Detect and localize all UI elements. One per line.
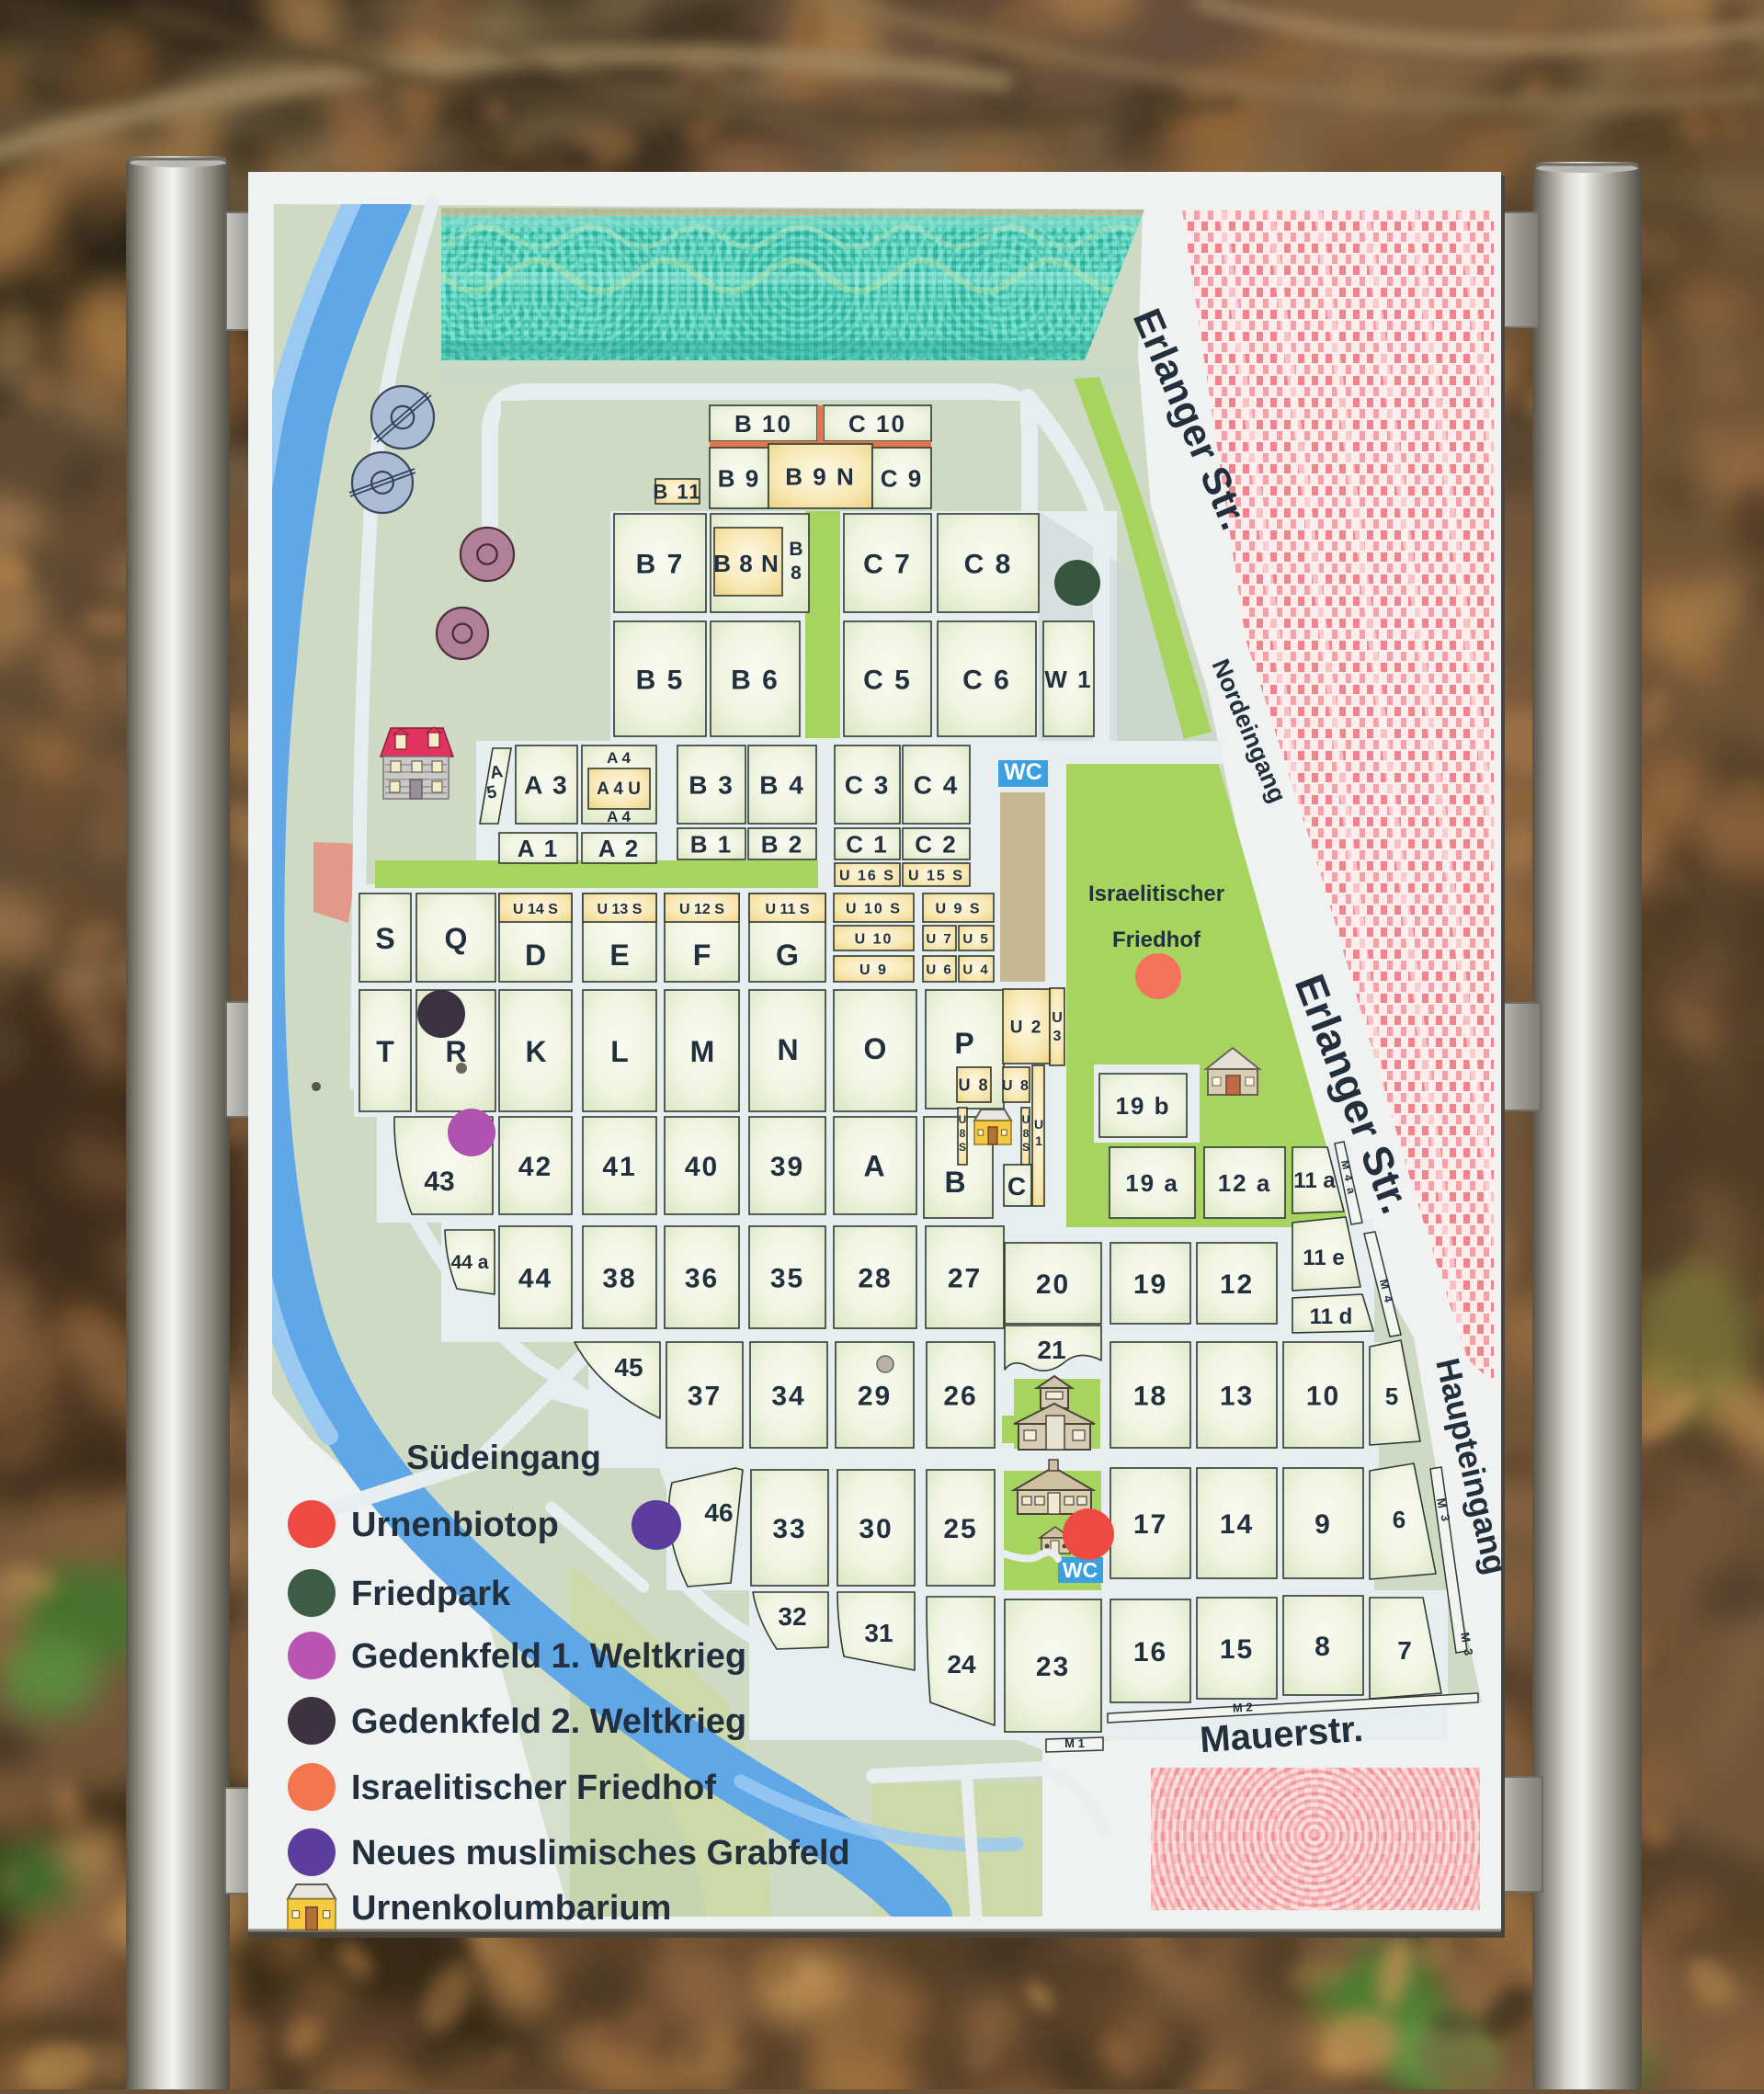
svg-text:28: 28 — [858, 1263, 892, 1293]
svg-text:12 a: 12 a — [1218, 1169, 1272, 1197]
svg-text:S: S — [1022, 1141, 1030, 1154]
svg-text:L: L — [610, 1035, 629, 1068]
svg-text:U: U — [1034, 1117, 1043, 1132]
svg-text:U: U — [1052, 1010, 1063, 1026]
svg-text:C 2: C 2 — [915, 830, 957, 858]
svg-text:Gedenkfeld 2. Weltkrieg: Gedenkfeld 2. Weltkrieg — [351, 1702, 746, 1741]
svg-text:B 9: B 9 — [718, 464, 760, 492]
svg-text:WC: WC — [1063, 1558, 1098, 1582]
svg-text:B 9 N: B 9 N — [785, 462, 855, 490]
svg-text:C 8: C 8 — [964, 549, 1013, 579]
svg-text:19 a: 19 a — [1125, 1169, 1179, 1197]
svg-text:P: P — [954, 1027, 973, 1060]
svg-text:9: 9 — [1314, 1509, 1332, 1540]
svg-text:C 5: C 5 — [863, 665, 912, 695]
svg-text:18: 18 — [1133, 1381, 1167, 1411]
svg-text:A 4: A 4 — [607, 749, 631, 767]
svg-text:36: 36 — [685, 1263, 719, 1293]
svg-text:U 14 S: U 14 S — [513, 902, 558, 917]
svg-text:C: C — [1007, 1172, 1026, 1201]
svg-text:8: 8 — [1314, 1632, 1332, 1662]
svg-text:45: 45 — [614, 1353, 643, 1382]
svg-text:13: 13 — [1220, 1381, 1254, 1411]
svg-text:A 4 U: A 4 U — [597, 780, 641, 799]
svg-text:M 2: M 2 — [1233, 1700, 1253, 1714]
svg-text:U 2: U 2 — [1010, 1018, 1043, 1037]
svg-text:26: 26 — [943, 1381, 977, 1411]
svg-text:W 1: W 1 — [1044, 666, 1092, 693]
svg-text:C 3: C 3 — [845, 771, 891, 800]
svg-text:41: 41 — [602, 1152, 636, 1182]
svg-text:31: 31 — [864, 1619, 893, 1647]
svg-text:S: S — [375, 922, 394, 955]
svg-text:39: 39 — [770, 1152, 804, 1182]
svg-text:8: 8 — [1023, 1127, 1030, 1140]
svg-text:U 6: U 6 — [926, 962, 952, 977]
svg-text:U 10: U 10 — [855, 931, 893, 947]
svg-text:B 10: B 10 — [734, 410, 792, 438]
svg-text:Gedenkfeld 1. Weltkrieg: Gedenkfeld 1. Weltkrieg — [351, 1637, 746, 1676]
svg-text:12: 12 — [1220, 1269, 1254, 1300]
svg-text:43: 43 — [424, 1166, 454, 1197]
svg-text:35: 35 — [770, 1263, 804, 1293]
svg-text:3: 3 — [1053, 1029, 1062, 1044]
svg-text:A 2: A 2 — [598, 835, 641, 862]
svg-text:16: 16 — [1133, 1637, 1167, 1667]
svg-text:B 1: B 1 — [690, 830, 733, 858]
svg-text:U 13 S: U 13 S — [597, 902, 643, 917]
svg-text:Friedpark: Friedpark — [351, 1575, 511, 1613]
svg-text:Friedhof: Friedhof — [1112, 928, 1201, 952]
svg-text:U 9 S: U 9 S — [935, 901, 981, 916]
svg-text:11 e: 11 e — [1303, 1246, 1344, 1270]
svg-text:B 8 N: B 8 N — [713, 550, 779, 577]
svg-text:A 1: A 1 — [518, 835, 560, 862]
svg-text:Israelitischer: Israelitischer — [1088, 882, 1224, 906]
svg-text:K: K — [525, 1035, 546, 1068]
svg-text:17: 17 — [1133, 1509, 1167, 1540]
svg-text:46: 46 — [704, 1498, 733, 1527]
svg-text:U 9: U 9 — [859, 962, 888, 978]
svg-text:19: 19 — [1133, 1269, 1167, 1300]
svg-text:N: N — [777, 1033, 798, 1066]
svg-text:Israelitischer Friedhof: Israelitischer Friedhof — [351, 1769, 716, 1807]
svg-text:37: 37 — [688, 1381, 722, 1411]
svg-text:23: 23 — [1036, 1652, 1070, 1682]
svg-text:B 11: B 11 — [653, 480, 701, 503]
svg-text:WC: WC — [1004, 759, 1042, 785]
svg-text:B 5: B 5 — [636, 665, 685, 695]
svg-text:11 d: 11 d — [1310, 1304, 1353, 1329]
svg-text:38: 38 — [602, 1263, 636, 1293]
svg-text:U 15 S: U 15 S — [908, 868, 964, 883]
svg-text:B 7: B 7 — [636, 549, 685, 579]
svg-text:10: 10 — [1306, 1381, 1340, 1411]
svg-text:U 5: U 5 — [962, 931, 989, 947]
svg-text:G: G — [776, 939, 799, 972]
svg-text:U 4: U 4 — [962, 962, 989, 977]
svg-text:B 2: B 2 — [761, 830, 803, 858]
svg-text:C 6: C 6 — [962, 665, 1011, 695]
svg-text:Urnenkolumbarium: Urnenkolumbarium — [351, 1889, 671, 1928]
svg-text:29: 29 — [858, 1381, 892, 1411]
svg-text:1: 1 — [1035, 1133, 1042, 1148]
svg-text:U 7: U 7 — [926, 931, 952, 947]
svg-text:19 b: 19 b — [1115, 1092, 1170, 1120]
svg-text:15: 15 — [1220, 1634, 1254, 1665]
svg-text:B 4: B 4 — [759, 771, 805, 800]
svg-text:44: 44 — [518, 1263, 552, 1293]
svg-text:U 11 S: U 11 S — [765, 902, 809, 917]
svg-text:C 9: C 9 — [881, 464, 923, 492]
svg-text:E: E — [609, 939, 629, 972]
svg-text:40: 40 — [685, 1152, 719, 1182]
svg-text:S: S — [959, 1141, 966, 1154]
svg-text:44 a: 44 a — [451, 1252, 489, 1273]
svg-text:27: 27 — [948, 1263, 982, 1293]
svg-text:7: 7 — [1397, 1636, 1412, 1665]
svg-text:5: 5 — [1385, 1383, 1398, 1410]
svg-text:B 6: B 6 — [731, 665, 780, 695]
svg-text:U: U — [959, 1113, 967, 1126]
svg-text:B 3: B 3 — [689, 771, 734, 800]
svg-text:U 10 S: U 10 S — [846, 901, 902, 916]
svg-text:C 1: C 1 — [846, 830, 888, 858]
svg-text:T: T — [376, 1035, 394, 1068]
svg-text:Neues muslimisches Grabfeld: Neues muslimisches Grabfeld — [351, 1834, 850, 1872]
svg-text:21: 21 — [1037, 1336, 1065, 1364]
svg-text:Urnenbiotop: Urnenbiotop — [351, 1506, 559, 1544]
svg-text:32: 32 — [778, 1602, 806, 1631]
svg-text:F: F — [693, 939, 711, 972]
svg-text:A: A — [863, 1150, 886, 1183]
svg-text:25: 25 — [943, 1514, 977, 1544]
svg-text:U 16 S: U 16 S — [839, 868, 895, 883]
svg-text:11 a: 11 a — [1293, 1168, 1336, 1193]
svg-text:U 8: U 8 — [958, 1075, 989, 1094]
svg-text:24: 24 — [947, 1650, 976, 1679]
svg-text:A 4: A 4 — [607, 808, 631, 825]
svg-text:U 12 S: U 12 S — [679, 902, 724, 917]
svg-text:A 3: A 3 — [524, 771, 569, 800]
svg-text:U 8: U 8 — [1002, 1078, 1030, 1094]
svg-text:O: O — [864, 1032, 887, 1065]
svg-text:8: 8 — [960, 1127, 966, 1140]
svg-text:U: U — [1022, 1113, 1030, 1126]
svg-text:B: B — [789, 539, 802, 560]
svg-text:Q: Q — [445, 922, 468, 955]
svg-text:20: 20 — [1036, 1269, 1070, 1300]
svg-text:Südeingang: Südeingang — [406, 1439, 601, 1476]
svg-text:34: 34 — [771, 1381, 805, 1411]
svg-text:C 4: C 4 — [914, 771, 960, 800]
svg-text:B: B — [944, 1166, 965, 1199]
svg-text:C 10: C 10 — [848, 410, 906, 438]
svg-text:M 1: M 1 — [1064, 1736, 1085, 1750]
svg-text:14: 14 — [1220, 1509, 1254, 1540]
svg-text:6: 6 — [1393, 1506, 1406, 1533]
svg-text:8: 8 — [791, 563, 802, 584]
svg-text:42: 42 — [518, 1152, 552, 1182]
svg-text:30: 30 — [859, 1514, 893, 1544]
svg-text:33: 33 — [772, 1514, 806, 1544]
svg-text:D: D — [525, 939, 546, 972]
svg-text:C 7: C 7 — [863, 549, 912, 579]
svg-text:M: M — [690, 1035, 715, 1068]
